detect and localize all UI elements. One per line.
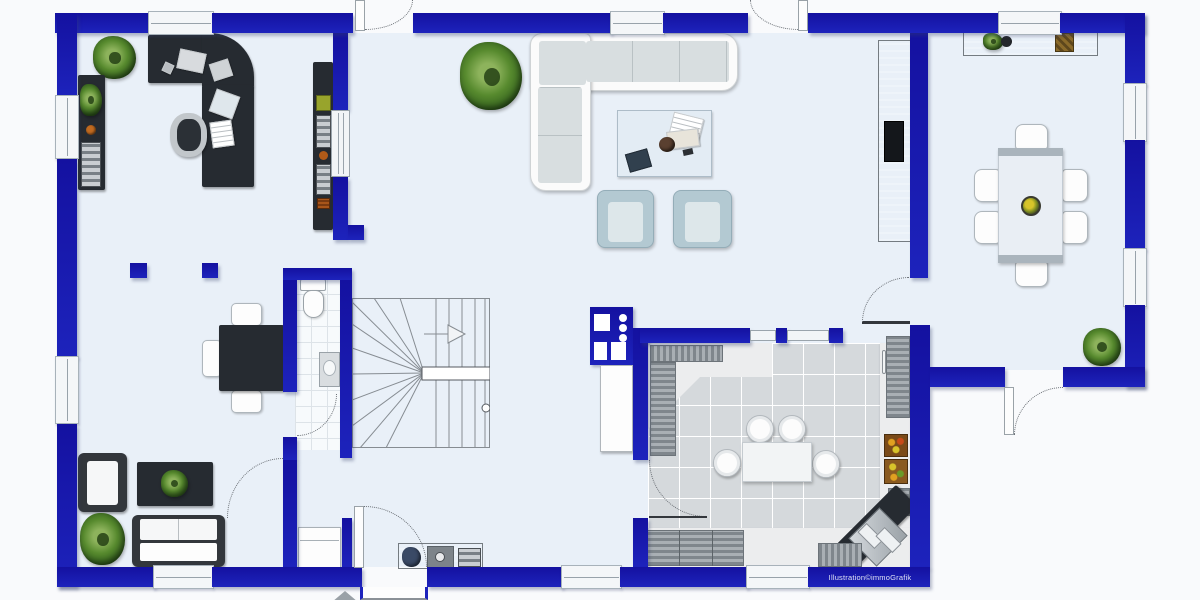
- sofa-corner-cushion: [539, 41, 586, 85]
- desk-paper: [209, 120, 234, 149]
- kitchen-cabinet-top: [650, 345, 723, 362]
- dining-chair: [1015, 261, 1048, 287]
- office-interior-window: [331, 110, 350, 177]
- kitchen-wall-top: [640, 328, 750, 343]
- cabinet-seam: [679, 530, 680, 566]
- wc-wall-left: [283, 437, 297, 460]
- sofa-cushions: [586, 41, 729, 82]
- column: [130, 263, 147, 278]
- entrance-step: [360, 587, 428, 600]
- sideboard-sprig-icon: [983, 33, 1003, 50]
- bar-stool: [778, 415, 806, 443]
- sofa-cushions: [538, 87, 582, 183]
- sideboard-stack: [81, 142, 101, 187]
- wall-right: [1125, 13, 1145, 85]
- hall-table: [219, 325, 284, 391]
- terrace-door-arc: [750, 0, 799, 30]
- utility-box-icon: [594, 342, 607, 360]
- window: [55, 356, 79, 424]
- office-wall-notch: [348, 225, 364, 240]
- window: [1123, 248, 1147, 307]
- kitchen-cabinet-left: [650, 362, 676, 456]
- kitchen-wall-left: [633, 328, 648, 460]
- wc-wall-left: [283, 280, 297, 392]
- office-plant-icon: [93, 36, 136, 79]
- basket-icon: [1055, 33, 1074, 52]
- dining-chair: [1062, 169, 1088, 202]
- shelf-item-orange-box: [317, 198, 330, 209]
- table-plant-icon: [161, 470, 188, 497]
- hall-chair: [231, 390, 262, 413]
- watermark: Illustration©immoGrafik: [812, 573, 928, 582]
- dining-chair: [1015, 124, 1048, 150]
- wall-bottom: [620, 567, 748, 587]
- kitchen-hatch-window: [750, 330, 776, 341]
- wall-left: [57, 159, 77, 358]
- wc-wall-right: [340, 280, 352, 458]
- tv-icon: [884, 121, 904, 162]
- dining-chair: [1062, 211, 1088, 244]
- appliance-dot-icon: [435, 552, 445, 562]
- kitchen-wall-left: [633, 518, 648, 567]
- terrace-door-leaf: [355, 0, 365, 31]
- wall-dining-bottom: [1063, 367, 1145, 387]
- kitchen-wall-pier: [776, 328, 787, 343]
- kitchen-cabinet-bottom-right: [818, 543, 862, 567]
- kitchen-wall-pier: [829, 328, 843, 343]
- utility-knob-icon: [619, 334, 627, 342]
- hall-closet-cabinet: [298, 527, 341, 569]
- shelf-item-orange: [319, 151, 328, 160]
- floor-plan: Illustration©immoGrafik: [0, 0, 1200, 600]
- dining-table-end: [998, 255, 1063, 263]
- lounge-wall: [283, 460, 297, 567]
- sideboard-bowl-icon: [86, 125, 96, 135]
- dining-chair: [974, 211, 1000, 244]
- wall-bottom: [57, 567, 155, 587]
- dining-chair: [974, 169, 1000, 202]
- shelf-stack: [316, 164, 331, 195]
- bar-stool: [812, 450, 840, 478]
- wall-bottom: [212, 567, 362, 587]
- office-wall: [333, 33, 348, 110]
- wc-sink-basin: [323, 360, 336, 376]
- fruit-crate-icon: [884, 459, 908, 484]
- kitchen-cabinet-bottom: [647, 530, 744, 566]
- shelf-item-green: [316, 95, 331, 111]
- lounge-sofa-seat: [140, 543, 217, 561]
- office-chair-seat: [177, 119, 201, 151]
- lounge-sofa-back: [140, 519, 217, 540]
- utility-knob-icon: [619, 314, 627, 322]
- bar-stool: [713, 449, 741, 477]
- fruit-bowl-icon: [1021, 196, 1041, 216]
- wall-right: [1125, 140, 1145, 250]
- wall-top: [808, 13, 1000, 33]
- utility-cabinet: [600, 365, 633, 452]
- window: [561, 565, 622, 589]
- armchair-seat: [685, 202, 720, 242]
- armchair-seat: [608, 202, 643, 242]
- entrance-arrow-icon: [332, 591, 358, 600]
- utility-sink-icon: [594, 314, 610, 331]
- window: [610, 11, 665, 35]
- utility-knob-icon: [619, 324, 627, 332]
- fridge-handle: [882, 350, 886, 374]
- column: [202, 263, 218, 278]
- utility-box-icon: [611, 342, 626, 360]
- closet-shelf-line: [300, 540, 339, 541]
- front-door-leaf: [354, 506, 364, 568]
- cabinet-seam: [712, 530, 713, 566]
- fridge: [886, 336, 910, 418]
- window: [1123, 83, 1147, 142]
- dining-table-end: [998, 148, 1063, 156]
- sideboard-plant-icon: [80, 84, 102, 116]
- bar-stool: [746, 415, 774, 443]
- entry-wall-stub: [342, 518, 352, 567]
- hall-plant-icon: [1083, 328, 1121, 366]
- kitchen-island: [742, 442, 812, 482]
- shelf-stack: [316, 115, 331, 148]
- wall-dining-bottom: [930, 367, 1005, 387]
- window: [746, 565, 810, 589]
- wall-top: [413, 13, 612, 33]
- office-wall: [333, 177, 348, 240]
- window: [148, 11, 214, 35]
- wall-left: [57, 13, 77, 97]
- lounge-armchair-cushion: [87, 461, 118, 505]
- wall-top: [212, 13, 353, 33]
- staircase: [352, 298, 490, 448]
- back-door-arc: [1014, 387, 1063, 435]
- fruit-crate-icon: [884, 434, 908, 457]
- wall-bottom: [427, 567, 563, 587]
- back-door-leaf: [1004, 387, 1014, 435]
- bowl-icon: [659, 137, 675, 152]
- dining-separator-wall: [910, 33, 928, 278]
- toilet-icon: [303, 290, 324, 318]
- window: [998, 11, 1062, 35]
- kitchen-wall-right: [910, 325, 930, 568]
- wall-top: [663, 13, 748, 33]
- living-plant-icon: [460, 42, 522, 110]
- wall-left: [57, 424, 77, 587]
- window: [55, 95, 79, 159]
- kitchen-door-leaf: [649, 516, 707, 518]
- sideboard-bowl-icon: [1001, 36, 1012, 47]
- wc-wall-top: [283, 268, 352, 280]
- lounge-plant-icon: [80, 513, 125, 565]
- window: [153, 565, 214, 589]
- terrace-door-leaf: [798, 0, 808, 31]
- terrace-door-arc: [365, 0, 413, 30]
- crate-icon: [458, 548, 481, 567]
- hall-chair: [231, 303, 262, 326]
- kitchen-hatch-window: [787, 330, 829, 341]
